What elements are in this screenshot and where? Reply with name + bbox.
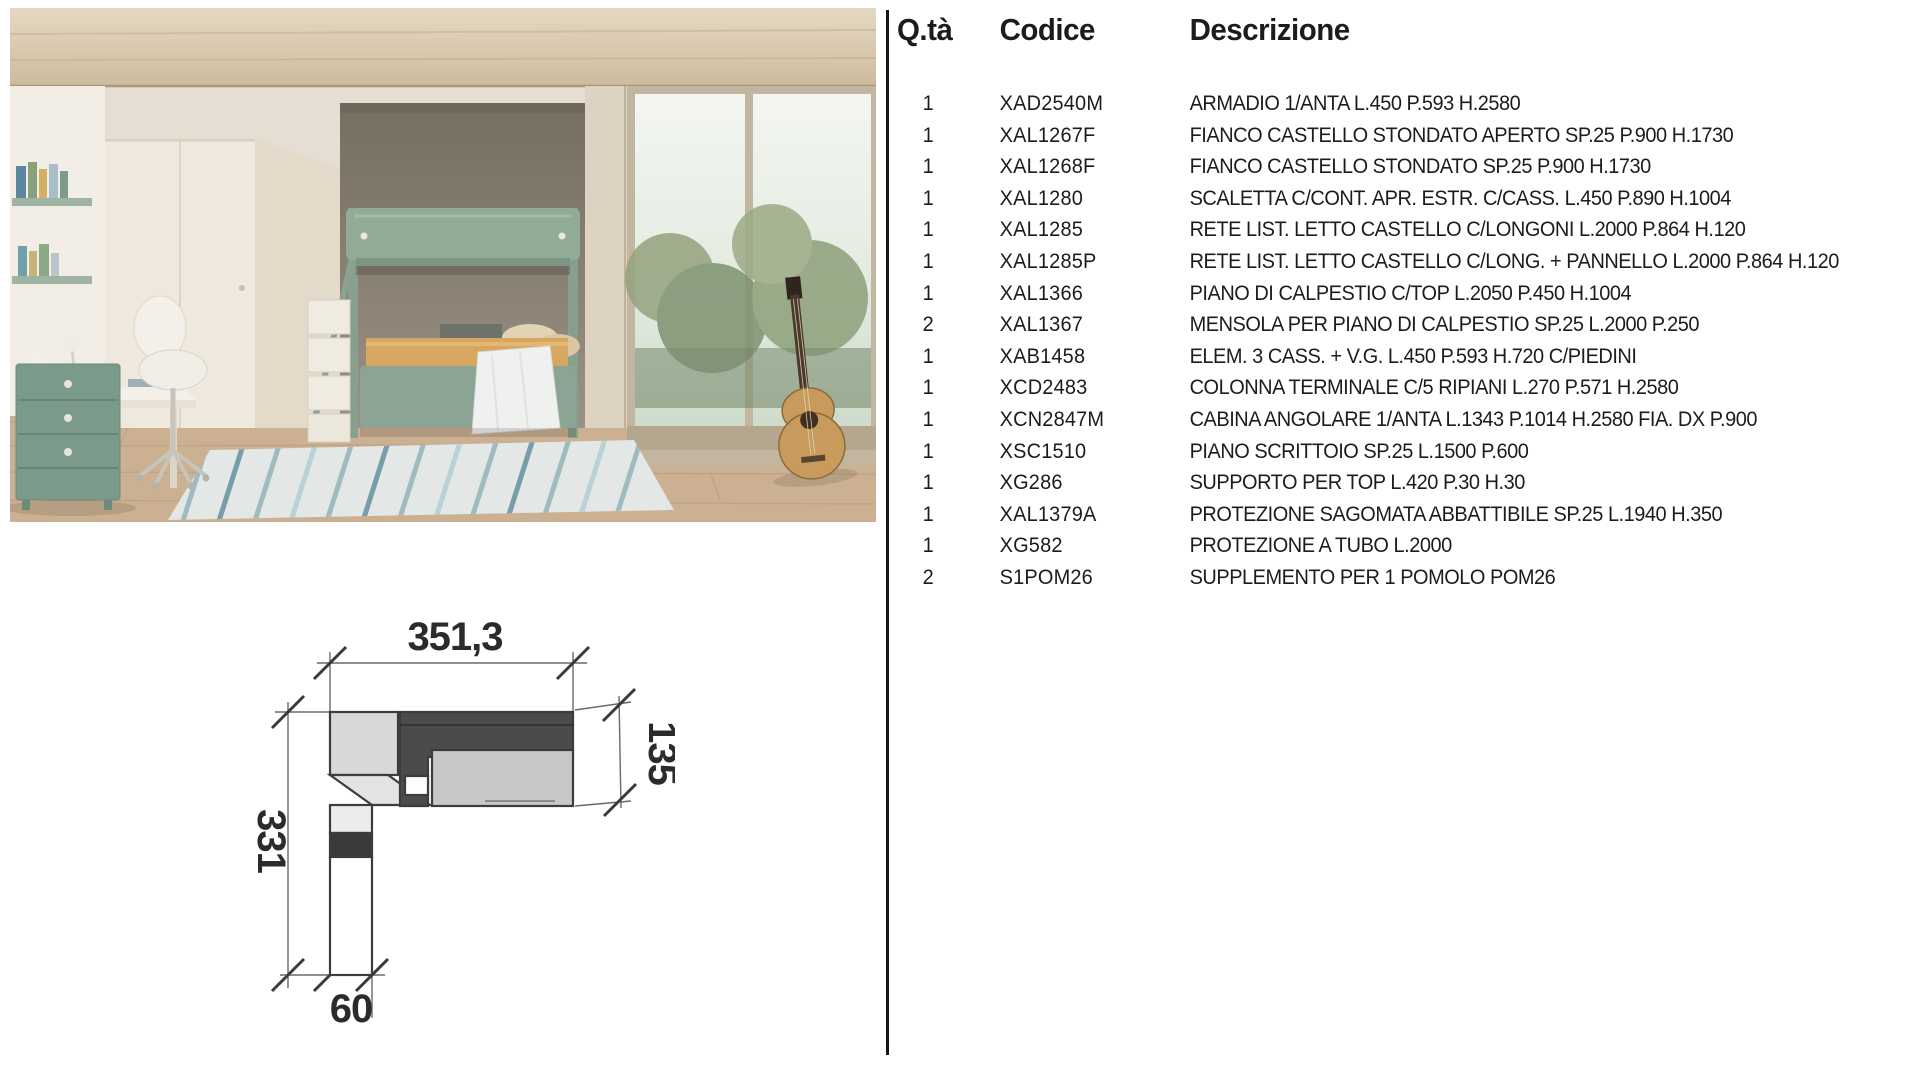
section-divider (886, 10, 889, 1055)
alcove-shadow (340, 103, 585, 113)
parts-table: Q.tà Codice Descrizione 1 XAD2540M ARMAD… (897, 12, 1909, 594)
desc: RETE LIST. LETTO CASTELLO C/LONG. + PANN… (1190, 246, 1859, 278)
code: XAL1379A (1000, 499, 1190, 531)
desc: PIANO DI CALPESTIO C/TOP L.2050 P.450 H.… (1190, 278, 1859, 310)
code: XAL1267F (1000, 120, 1190, 152)
code: XAL1285P (1000, 246, 1190, 278)
qty: 2 (897, 562, 1000, 594)
plan-ladder-notch (405, 776, 428, 795)
catalog-page: { "colors": { "accent_green": "#8fa795",… (0, 0, 1920, 1080)
code: S1POM26 (1000, 562, 1190, 594)
floor-plan: 351,3 331 135 60 (225, 598, 675, 1068)
dim-label-bottom: 60 (330, 987, 373, 1031)
desc: ARMADIO 1/ANTA L.450 P.593 H.2580 (1190, 88, 1859, 120)
dim-label-left: 331 (249, 809, 293, 873)
code: XAL1367 (1000, 309, 1190, 341)
qty: 1 (897, 436, 1000, 468)
plan-column-block (330, 805, 372, 833)
code: XAL1285 (1000, 214, 1190, 246)
column-header-qty: Q.tà (897, 12, 1000, 48)
lower-bed (360, 324, 580, 437)
desc: FIANCO CASTELLO STONDATO SP.25 P.900 H.1… (1190, 151, 1859, 183)
room-scene (10, 8, 876, 522)
qty: 1 (897, 278, 1000, 310)
code: XCN2847M (1000, 404, 1190, 436)
ceiling-beam (10, 8, 876, 86)
code: XAL1268F (1000, 151, 1190, 183)
desc: SUPPLEMENTO PER 1 POMOLO POM26 (1190, 562, 1859, 594)
table-header: Q.tà Codice Descrizione (897, 12, 1858, 48)
dimension-lines (275, 652, 631, 1018)
qty: 1 (897, 88, 1000, 120)
desc: FIANCO CASTELLO STONDATO APERTO SP.25 P.… (1190, 120, 1859, 152)
dimension-ticks (272, 647, 636, 991)
table-rows: 1 XAD2540M ARMADIO 1/ANTA L.450 P.593 H.… (897, 88, 1858, 594)
qty: 1 (897, 151, 1000, 183)
qty: 2 (897, 309, 1000, 341)
desc: ELEM. 3 CASS. + V.G. L.450 P.593 H.720 C… (1190, 341, 1859, 373)
qty: 1 (897, 467, 1000, 499)
drawer-chest (10, 347, 136, 516)
dim-label-right: 135 (640, 721, 675, 785)
desc: PROTEZIONE SAGOMATA ABBATTIBILE SP.25 L.… (1190, 499, 1859, 531)
desc: SCALETTA C/CONT. APR. ESTR. C/CASS. L.45… (1190, 183, 1859, 215)
desc: COLONNA TERMINALE C/5 RIPIANI L.270 P.57… (1190, 372, 1859, 404)
qty: 1 (897, 246, 1000, 278)
code: XSC1510 (1000, 436, 1190, 468)
code: XAL1280 (1000, 183, 1190, 215)
plan-drawer-unit (330, 833, 372, 857)
qty: 1 (897, 499, 1000, 531)
stair-steps (308, 300, 350, 442)
plan-mattress (432, 750, 573, 806)
desc: PIANO SCRITTOIO SP.25 L.1500 P.600 (1190, 436, 1859, 468)
code: XAB1458 (1000, 341, 1190, 373)
column-header-desc: Descrizione (1190, 12, 1859, 48)
qty: 1 (897, 341, 1000, 373)
bunk-bed (308, 208, 580, 442)
qty: 1 (897, 214, 1000, 246)
room-photo (10, 8, 876, 522)
qty: 1 (897, 372, 1000, 404)
qty: 1 (897, 530, 1000, 562)
desc: RETE LIST. LETTO CASTELLO C/LONGONI L.20… (1190, 214, 1859, 246)
desc: MENSOLA PER PIANO DI CALPESTIO SP.25 L.2… (1190, 309, 1859, 341)
code: XAD2540M (1000, 88, 1190, 120)
desc: SUPPORTO PER TOP L.420 P.30 H.30 (1190, 467, 1859, 499)
wardrobe-handle (239, 285, 245, 291)
window (625, 86, 876, 466)
code: XG286 (1000, 467, 1190, 499)
code: XG582 (1000, 530, 1190, 562)
floor-plan-diagram: 351,3 331 135 60 (225, 598, 675, 1068)
desc: CABINA ANGOLARE 1/ANTA L.1343 P.1014 H.2… (1190, 404, 1859, 436)
qty: 1 (897, 404, 1000, 436)
drawer-knob (64, 380, 72, 388)
drawer-knob (64, 414, 72, 422)
code: XCD2483 (1000, 372, 1190, 404)
wall-pillar (585, 86, 627, 428)
code: XAL1366 (1000, 278, 1190, 310)
plan-desk-outline (330, 857, 372, 975)
white-blanket (472, 346, 560, 434)
qty: 1 (897, 183, 1000, 215)
column-header-code: Codice (1000, 12, 1190, 48)
plan-blocks (330, 712, 573, 975)
qty: 1 (897, 120, 1000, 152)
drawer-knob (64, 448, 72, 456)
plan-corner-cabinet (330, 712, 398, 775)
dim-label-top: 351,3 (407, 615, 502, 659)
desc: PROTEZIONE A TUBO L.2000 (1190, 530, 1859, 562)
